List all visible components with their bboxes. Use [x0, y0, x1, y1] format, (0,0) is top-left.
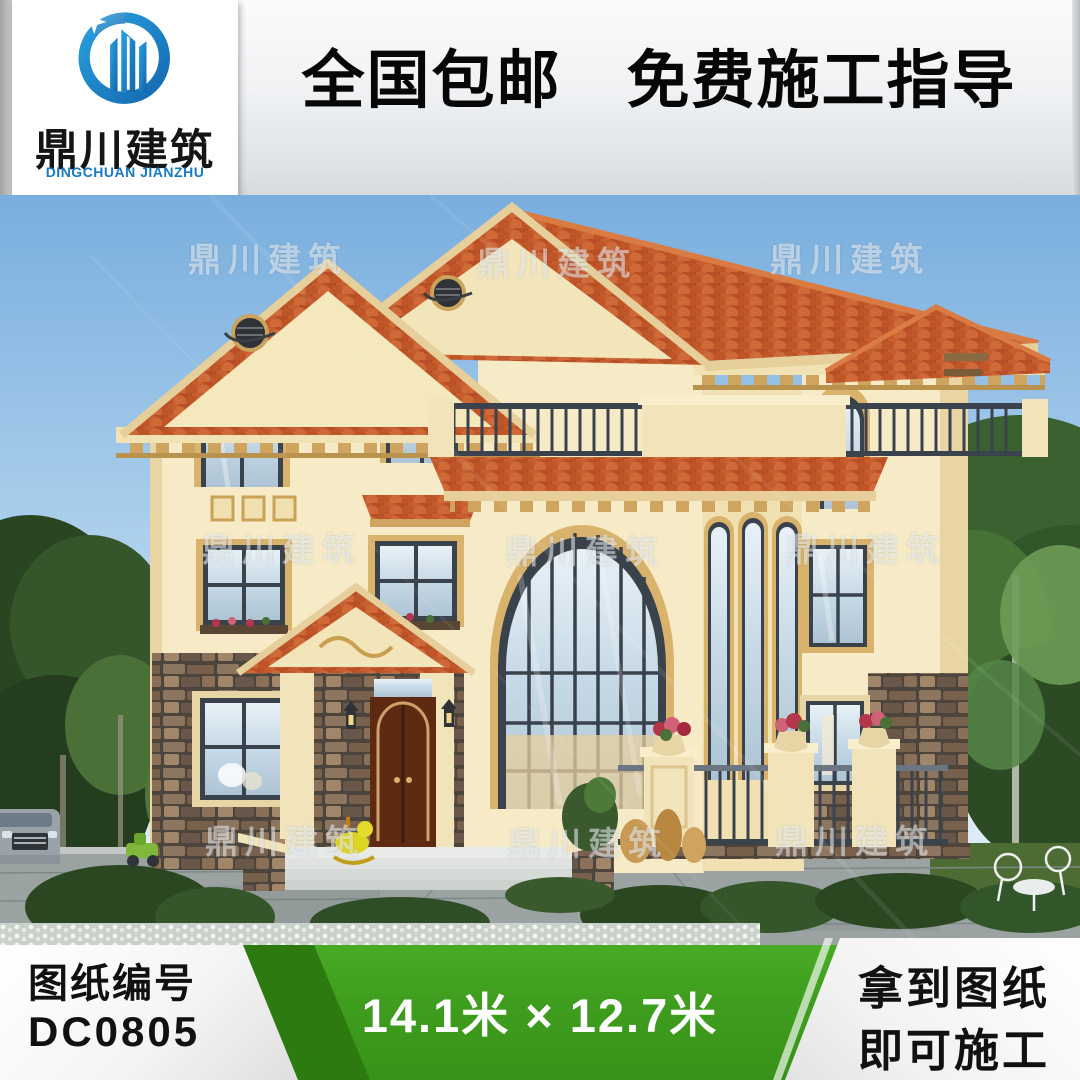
brand-logo-card: 鼎川建筑 DINGCHUAN JIANZHU [12, 0, 238, 196]
construction-ready-line2: 即可施工 [858, 1014, 1050, 1079]
pent-roof [430, 457, 888, 512]
car [0, 809, 60, 864]
construction-ready-line1: 拿到图纸 [858, 952, 1050, 1017]
header-right-shade [1072, 0, 1080, 195]
promo-poster: 全国包邮 免费施工指导 鼎川建筑 DINGCHUAN JIANZHU [0, 0, 1080, 1080]
window-w1 [196, 539, 292, 634]
pergola-beam [944, 353, 988, 361]
brand-logo-icon [69, 4, 181, 116]
plan-number-label: 图纸编号 [28, 951, 196, 1009]
house-dimensions: 14.1米 × 12.7米 [300, 977, 780, 1046]
villa-scene [0, 195, 1080, 945]
banner-slogan: 全国包邮 免费施工指导 [245, 0, 1073, 150]
brand-name-en: DINGCHUAN JIANZHU [12, 164, 238, 180]
right-rect-window [802, 539, 874, 653]
villa-render-photo: 鼎川建筑 鼎川建筑 鼎川建筑 鼎川建筑 鼎川建筑 鼎川建筑 鼎川建筑 鼎川建筑 … [0, 195, 1080, 945]
plan-number-code: DC0805 [28, 1008, 200, 1056]
header-left-shade [0, 0, 12, 195]
pebble-strip [0, 923, 760, 945]
facade-squares [212, 497, 295, 520]
door-transom [374, 679, 432, 697]
